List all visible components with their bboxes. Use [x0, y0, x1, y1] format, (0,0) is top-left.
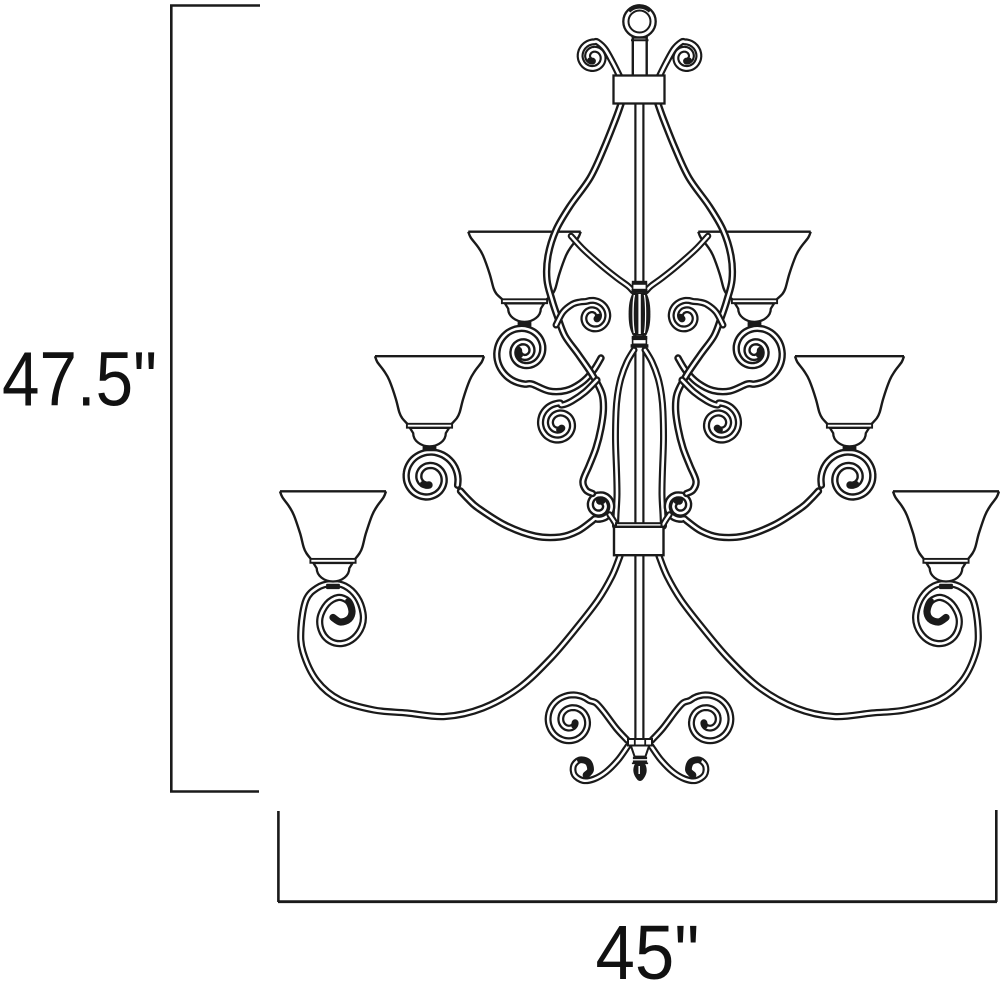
svg-text:47.5": 47.5"	[2, 337, 157, 422]
svg-text:45": 45"	[596, 909, 700, 995]
